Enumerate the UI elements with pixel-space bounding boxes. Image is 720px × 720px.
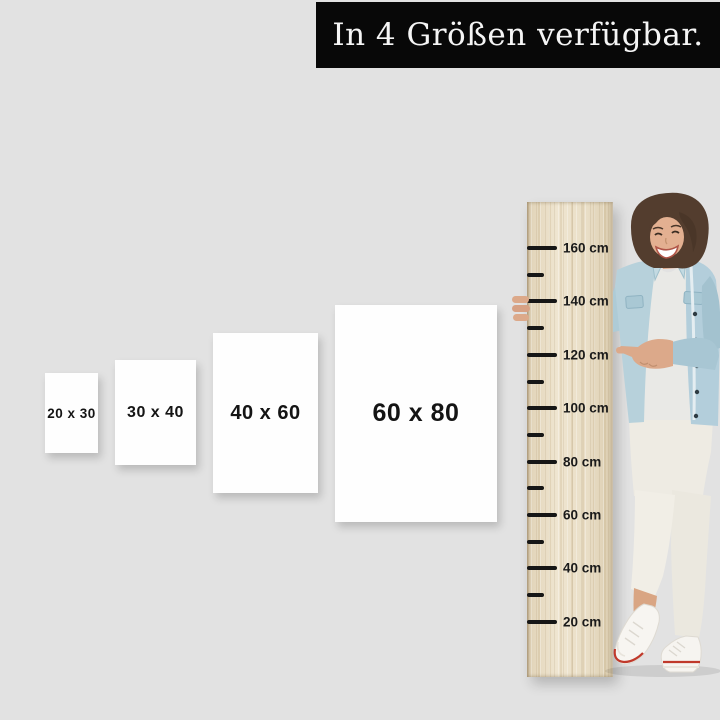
sneaker-crossed — [615, 604, 660, 664]
size-card-20x30: 20 x 30 — [45, 373, 98, 453]
floor-shadow — [605, 665, 720, 677]
head — [631, 193, 709, 269]
size-card-40x60: 40 x 60 — [213, 333, 318, 493]
woman-photo — [505, 190, 720, 680]
headline-banner: In 4 Größen verfügbar. — [316, 2, 720, 68]
headline-text: In 4 Größen verfügbar. — [332, 17, 703, 53]
size-label-20x30: 20 x 30 — [47, 406, 96, 421]
hand-gripping-ruler — [512, 296, 530, 321]
size-label-60x80: 60 x 80 — [373, 399, 460, 428]
size-label-30x40: 30 x 40 — [127, 404, 184, 422]
legs — [615, 416, 713, 672]
product-size-chart-image: In 4 Größen verfügbar. 20 x 30 30 x 40 4… — [0, 0, 720, 720]
size-label-40x60: 40 x 60 — [230, 402, 300, 425]
index-finger — [616, 347, 639, 354]
size-card-60x80: 60 x 80 — [335, 305, 497, 522]
size-card-30x40: 30 x 40 — [115, 360, 196, 465]
sneaker-standing — [661, 636, 701, 672]
